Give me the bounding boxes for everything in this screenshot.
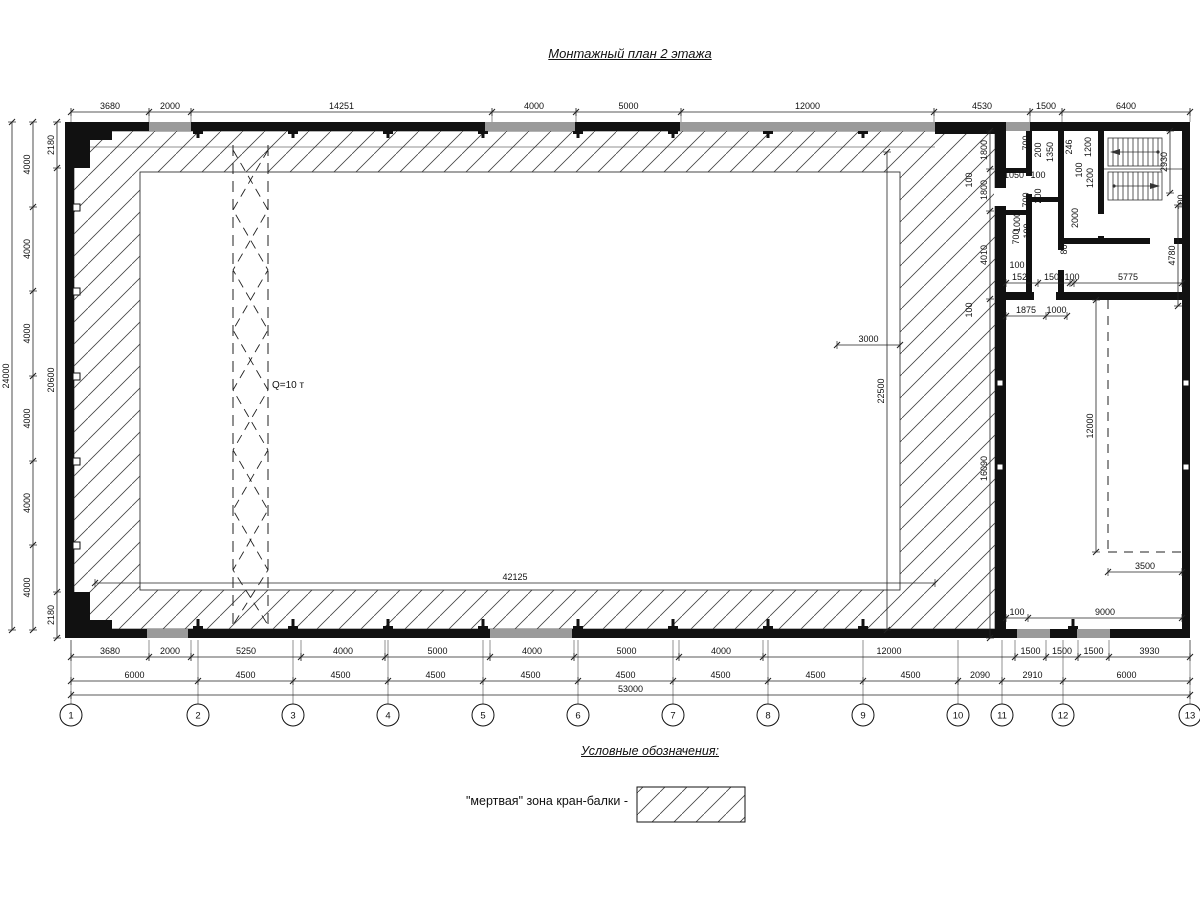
column-mark xyxy=(197,131,200,138)
dim-label: 1000 xyxy=(1012,212,1022,232)
crane-capacity-label: Q=10 т xyxy=(272,380,305,391)
grid-bubble-number: 12 xyxy=(1058,711,1069,722)
dim-label: 100 xyxy=(1009,260,1024,270)
dim-label: 1000 xyxy=(1046,305,1066,315)
column-mark xyxy=(292,131,295,138)
grid-bubble-number: 10 xyxy=(953,711,964,722)
dim-label: 200 xyxy=(1033,142,1043,157)
column-mark xyxy=(387,131,390,138)
dim-label: 100 xyxy=(1074,162,1084,177)
dim-label: 1800 xyxy=(979,180,989,200)
column-mark xyxy=(577,131,580,138)
dim-label: 1350 xyxy=(1045,142,1055,162)
column-mark xyxy=(73,373,80,380)
drawing-sheet: Q=10 т 368020001425140005 xyxy=(0,0,1200,900)
column-mark xyxy=(73,204,80,211)
column-mark xyxy=(997,380,1003,386)
column-mark xyxy=(997,464,1003,470)
dim-label: 4500 xyxy=(520,670,540,680)
dim-label: 1500 xyxy=(1020,646,1040,656)
right-room-dashed-lines xyxy=(1108,300,1182,552)
dim-label: 6000 xyxy=(1116,670,1136,680)
dim-label: 4000 xyxy=(333,646,353,656)
dim-label: 1500 xyxy=(1052,646,1072,656)
dim-label: 1500 xyxy=(1044,272,1064,282)
dim-label: 100 xyxy=(964,172,974,187)
column-mark xyxy=(767,131,770,138)
dim-label: 700 xyxy=(1021,192,1031,207)
dim-label: 5000 xyxy=(618,101,638,111)
dim-label: 4500 xyxy=(900,670,920,680)
dim-label: 2180 xyxy=(46,605,56,625)
dim-label: 100 xyxy=(1176,194,1186,209)
grid-bubble-number: 8 xyxy=(765,711,770,722)
dim-label: 100 xyxy=(1030,170,1045,180)
dim-label: 4000 xyxy=(22,493,32,513)
column-mark xyxy=(193,626,203,629)
dim-label: 200 xyxy=(1033,188,1043,203)
legend-hatch-swatch xyxy=(637,787,745,822)
dim-label: 4530 xyxy=(972,101,992,111)
column-mark xyxy=(288,626,298,629)
dim-label: 4500 xyxy=(710,670,730,680)
grid-bubble-number: 4 xyxy=(385,711,390,722)
dim-label: 24000 xyxy=(1,363,11,388)
dim-label: 4500 xyxy=(425,670,445,680)
column-mark xyxy=(672,619,675,626)
dim-label: 3500 xyxy=(1135,561,1155,571)
dim-label: 100 xyxy=(1022,223,1032,238)
column-mark xyxy=(482,131,485,138)
dim-label: 5000 xyxy=(427,646,447,656)
dim-label: 1800 xyxy=(979,140,989,160)
column-mark xyxy=(73,542,80,549)
dim-label: 4500 xyxy=(235,670,255,680)
dim-label: 3930 xyxy=(1139,646,1159,656)
dim-label: 800 xyxy=(1059,239,1069,254)
column-mark xyxy=(573,626,583,629)
dim-label: 100 xyxy=(964,302,974,317)
column-mark xyxy=(668,626,678,629)
dim-label: 4500 xyxy=(615,670,635,680)
dim-label: 3680 xyxy=(100,101,120,111)
dim-label: 4000 xyxy=(22,323,32,343)
dim-label: 12000 xyxy=(876,646,901,656)
dim-label: 2000 xyxy=(160,646,180,656)
dim-label: 2000 xyxy=(160,101,180,111)
floor-plan-svg: Q=10 т 368020001425140005 xyxy=(0,0,1200,900)
dim-label: 4000 xyxy=(711,646,731,656)
dim-label: 1500 xyxy=(1083,646,1103,656)
column-mark xyxy=(482,619,485,626)
column-mark xyxy=(862,619,865,626)
dim-label: 6400 xyxy=(1116,101,1136,111)
dim-label: 5775 xyxy=(1118,272,1138,282)
dim-label: 1200 xyxy=(1085,168,1095,188)
grid-bubble-number: 6 xyxy=(575,711,580,722)
dim-label: 4000 xyxy=(522,646,542,656)
dim-label: 12000 xyxy=(1085,413,1095,438)
hall-door-opening xyxy=(994,188,1007,206)
grid-bubble-number: 9 xyxy=(860,711,865,722)
dim-label: 4000 xyxy=(22,577,32,597)
column-mark xyxy=(672,131,675,138)
dim-label: 16090 xyxy=(979,456,989,481)
dim-label: 700 xyxy=(1011,229,1021,244)
column-mark xyxy=(1068,626,1078,629)
dim-label: 22500 xyxy=(876,378,886,403)
crane-dead-zone-hatch xyxy=(74,131,995,629)
dim-label: 3680 xyxy=(100,646,120,656)
dim-label: 1525 xyxy=(1012,272,1032,282)
legend-item-label: "мертвая" зона кран-балки - xyxy=(350,794,628,808)
legend-heading: Условные обозначения: xyxy=(500,744,800,758)
dim-label: 12000 xyxy=(795,101,820,111)
column-mark xyxy=(858,626,868,629)
dim-label: 246 xyxy=(1064,139,1074,154)
column-mark xyxy=(387,619,390,626)
dim-label: 4500 xyxy=(805,670,825,680)
column-mark xyxy=(292,619,295,626)
dim-label: 4000 xyxy=(22,154,32,174)
dim-label: 2930 xyxy=(1159,152,1169,172)
grid-bubble-number: 5 xyxy=(480,711,485,722)
dim-label: 5250 xyxy=(236,646,256,656)
dim-label: 20600 xyxy=(46,367,56,392)
column-mark xyxy=(73,288,80,295)
dim-label: 2180 xyxy=(46,135,56,155)
drawing-title: Монтажный план 2 этажа xyxy=(480,46,780,61)
column-mark xyxy=(1072,619,1075,626)
dim-label: 1500 xyxy=(1036,101,1056,111)
dim-label: 9000 xyxy=(1095,607,1115,617)
column-mark xyxy=(862,131,865,138)
dim-label: 4780 xyxy=(1167,245,1177,265)
dim-label: 42125 xyxy=(502,572,527,582)
dim-label: 1050 xyxy=(1004,170,1024,180)
dim-label: 2090 xyxy=(970,670,990,680)
column-mark xyxy=(577,619,580,626)
column-mark xyxy=(197,619,200,626)
column-mark xyxy=(1183,380,1189,386)
column-mark xyxy=(383,626,393,629)
grid-bubble-number: 2 xyxy=(195,711,200,722)
dim-label: 2000 xyxy=(1070,208,1080,228)
column-mark xyxy=(73,458,80,465)
dim-label: 4000 xyxy=(524,101,544,111)
column-mark xyxy=(478,626,488,629)
dim-label: 4000 xyxy=(22,239,32,259)
grid-bubble-number: 11 xyxy=(997,711,1007,722)
dim-label: 1200 xyxy=(1083,137,1093,157)
dim-label: 100 xyxy=(1064,272,1079,282)
dim-label: 3000 xyxy=(858,334,878,344)
dim-label: 700 xyxy=(1021,135,1031,150)
grid-bubble-number: 3 xyxy=(290,711,295,722)
dim-label: 4500 xyxy=(330,670,350,680)
dim-label: 1875 xyxy=(1016,305,1036,315)
dim-label: 5000 xyxy=(616,646,636,656)
column-mark xyxy=(767,619,770,626)
column-mark xyxy=(1183,464,1189,470)
dim-label: 14251 xyxy=(329,101,354,111)
dim-label: 53000 xyxy=(618,684,643,694)
dim-label: 100 xyxy=(1009,607,1024,617)
grid-bubble-number: 1 xyxy=(68,711,73,722)
dim-label: 4010 xyxy=(979,245,989,265)
dim-label: 6000 xyxy=(124,670,144,680)
dim-label: 4000 xyxy=(22,408,32,428)
grid-bubble-number: 7 xyxy=(670,711,675,722)
column-mark xyxy=(763,626,773,629)
dim-label: 2910 xyxy=(1022,670,1042,680)
grid-bubble-number: 13 xyxy=(1185,711,1196,722)
